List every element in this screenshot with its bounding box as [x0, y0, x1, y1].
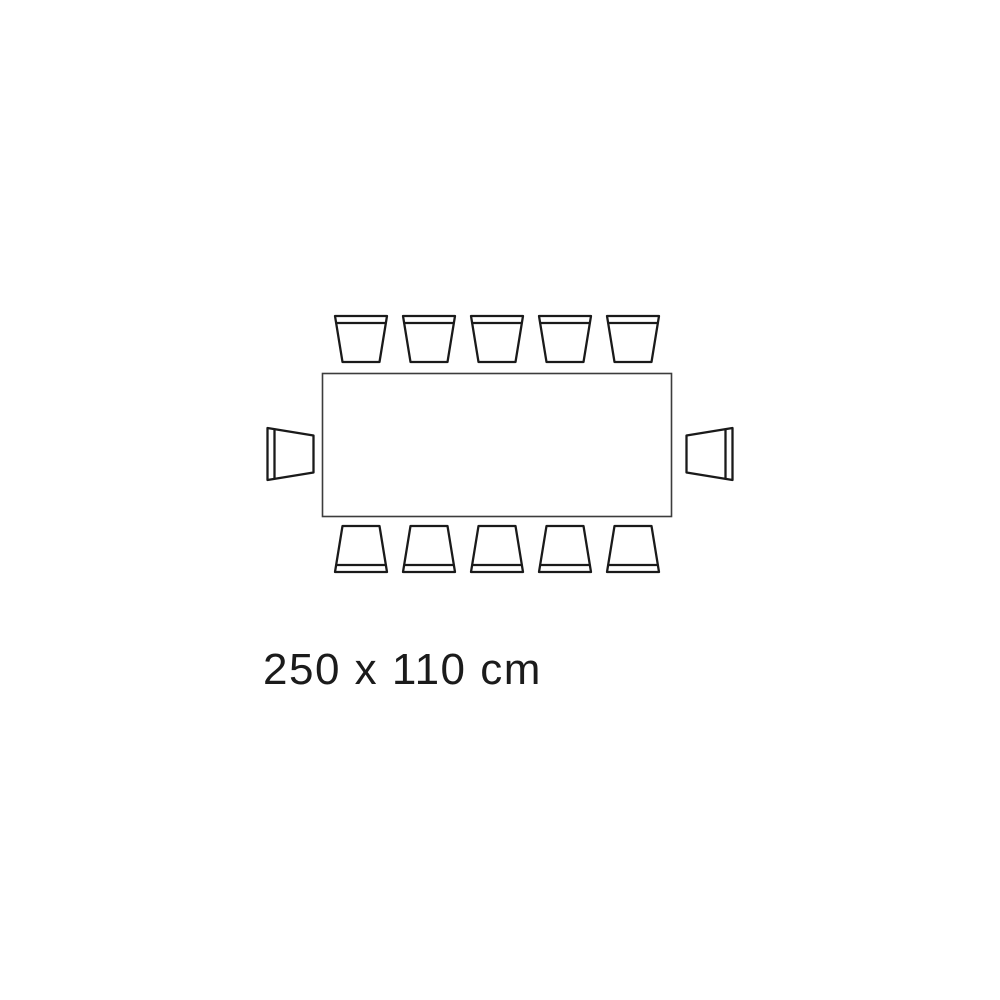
chair-top-3	[471, 316, 523, 362]
table	[323, 374, 672, 517]
chair-bottom-5	[607, 526, 659, 572]
table-dimensions-label: 250 x 110 cm	[263, 645, 542, 695]
chair-top-4	[539, 316, 591, 362]
chair-top-1	[335, 316, 387, 362]
chair-bottom-4	[539, 526, 591, 572]
table-plan-diagram: 250 x 110 cm	[0, 0, 1000, 1000]
chair-top-2	[403, 316, 455, 362]
chair-left-1	[268, 428, 314, 480]
chair-bottom-3	[471, 526, 523, 572]
chair-bottom-1	[335, 526, 387, 572]
chair-bottom-2	[403, 526, 455, 572]
seating-plan-svg	[0, 0, 1000, 1000]
chair-top-5	[607, 316, 659, 362]
chair-right-1	[687, 428, 733, 480]
